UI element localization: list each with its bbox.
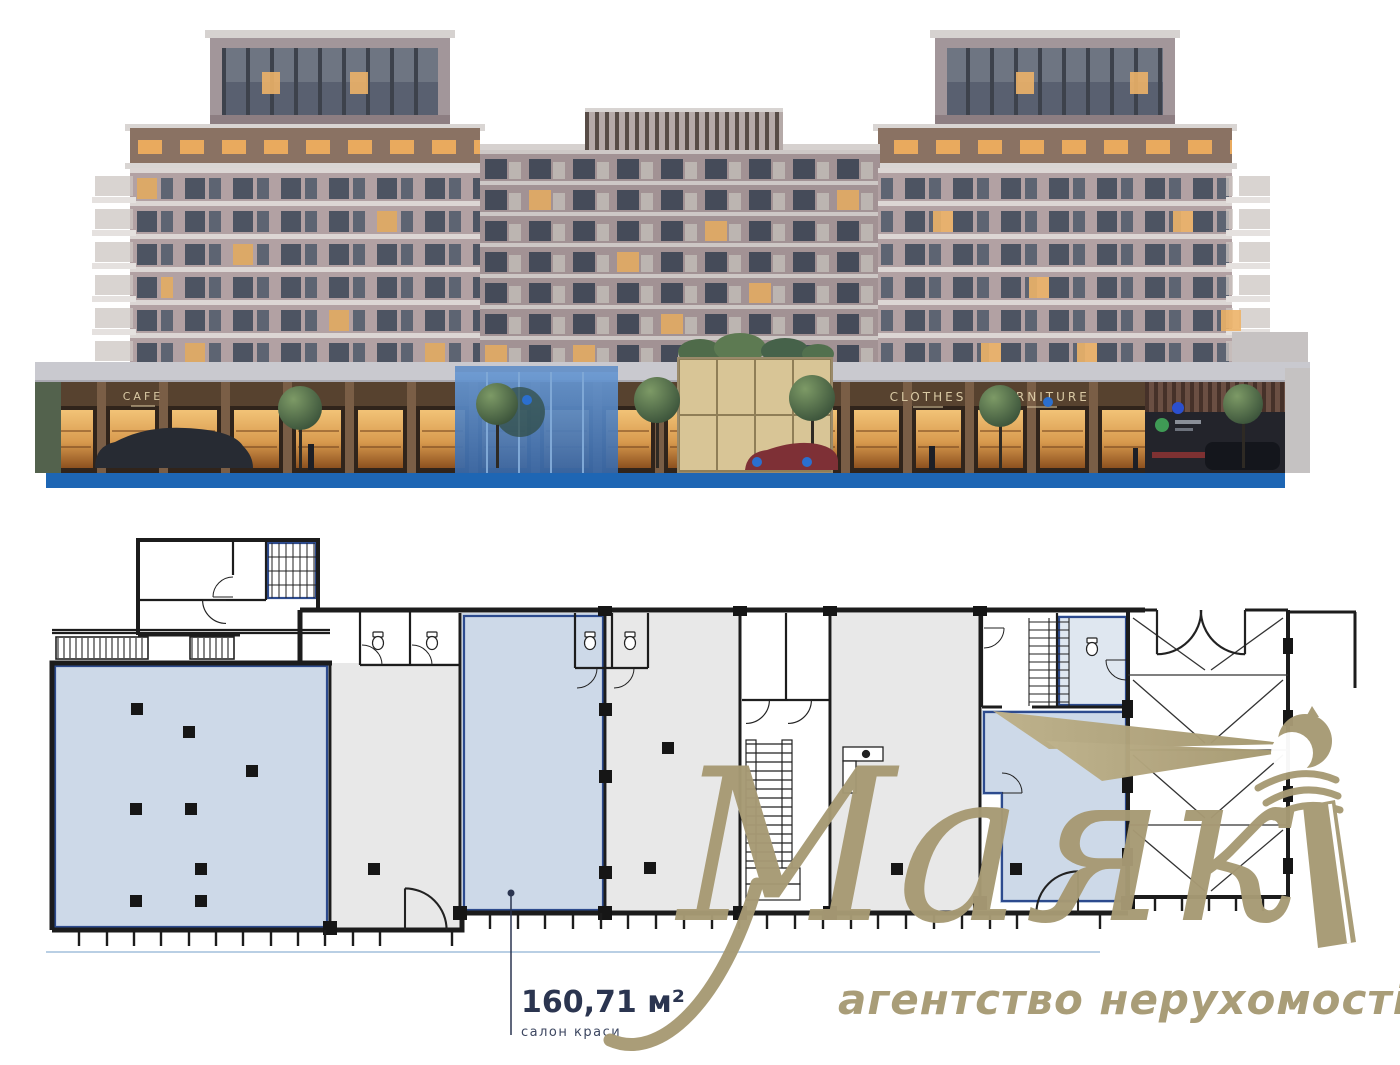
brand-name: Маяк [674,723,1296,970]
exterior-stairs [56,637,234,659]
building-render: CAFE CLOTHES FURNITURE [35,30,1310,488]
base-strip [46,473,1285,488]
brand-watermark: Маяк агентство нерухомості [610,706,1400,1044]
dark-storefront [1145,382,1285,473]
storefront-sign-cafe: CAFE [123,390,163,403]
unit-available-c [462,613,605,913]
area-value: 160,71 м² [521,985,685,1020]
real-estate-listing-image: CAFE CLOTHES FURNITURE [0,0,1400,1065]
brand-tagline: агентство нерухомості [838,975,1400,1024]
storefront-sign-clothes: CLOTHES [890,390,967,404]
stair-shaft [268,543,316,598]
blue-glass-storefront [455,366,618,473]
unit-b [332,663,460,930]
unit-available-a [52,663,330,930]
